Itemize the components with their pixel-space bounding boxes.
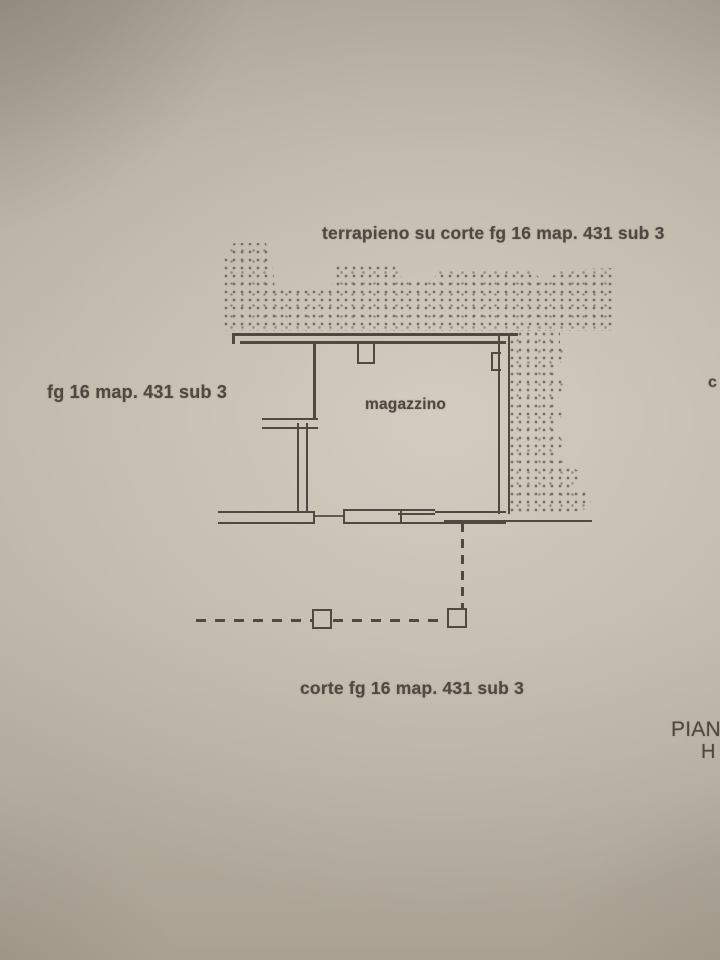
wall-top-outer bbox=[233, 333, 518, 336]
wall-bottom-mid-segment bbox=[343, 509, 402, 524]
boundary-dashed-left bbox=[196, 619, 313, 622]
boundary-dashed-right bbox=[333, 619, 448, 622]
plan-title-cutoff: PIAN bbox=[671, 718, 720, 742]
terrapieno-label: terrapieno su corte fg 16 map. 431 sub 3 bbox=[322, 223, 665, 244]
ground-line-right bbox=[444, 520, 592, 522]
left-parcel-label: fg 16 map. 431 sub 3 bbox=[47, 382, 227, 403]
wall-partition-vertical bbox=[313, 343, 316, 420]
wall-top-notch bbox=[357, 343, 375, 364]
wall-left-lower bbox=[297, 423, 308, 513]
wall-top-left-tick bbox=[232, 333, 235, 344]
right-edge-text-cutoff: c bbox=[708, 374, 717, 392]
window-symbol bbox=[398, 509, 435, 524]
window-symbol-midline bbox=[398, 513, 435, 515]
wall-bottom-right-segment bbox=[435, 511, 506, 524]
boundary-post-middle bbox=[312, 609, 332, 629]
wall-right-notch bbox=[491, 352, 501, 371]
boundary-dashed-vertical bbox=[461, 523, 464, 609]
wall-bottom-left-segment bbox=[218, 511, 315, 524]
boundary-post-right bbox=[447, 608, 467, 628]
photographed-floor-plan-document: terrapieno su corte fg 16 map. 431 sub 3… bbox=[0, 0, 720, 960]
height-note-cutoff: H bbox=[701, 741, 716, 764]
door-threshold-line bbox=[313, 515, 343, 517]
room-label: magazzino bbox=[365, 396, 446, 414]
corte-label: corte fg 16 map. 431 sub 3 bbox=[300, 678, 524, 699]
terrapieno-hatch-top bbox=[222, 240, 614, 331]
wall-stub-horizontal bbox=[262, 418, 318, 429]
terrapieno-hatch-right bbox=[508, 330, 596, 513]
